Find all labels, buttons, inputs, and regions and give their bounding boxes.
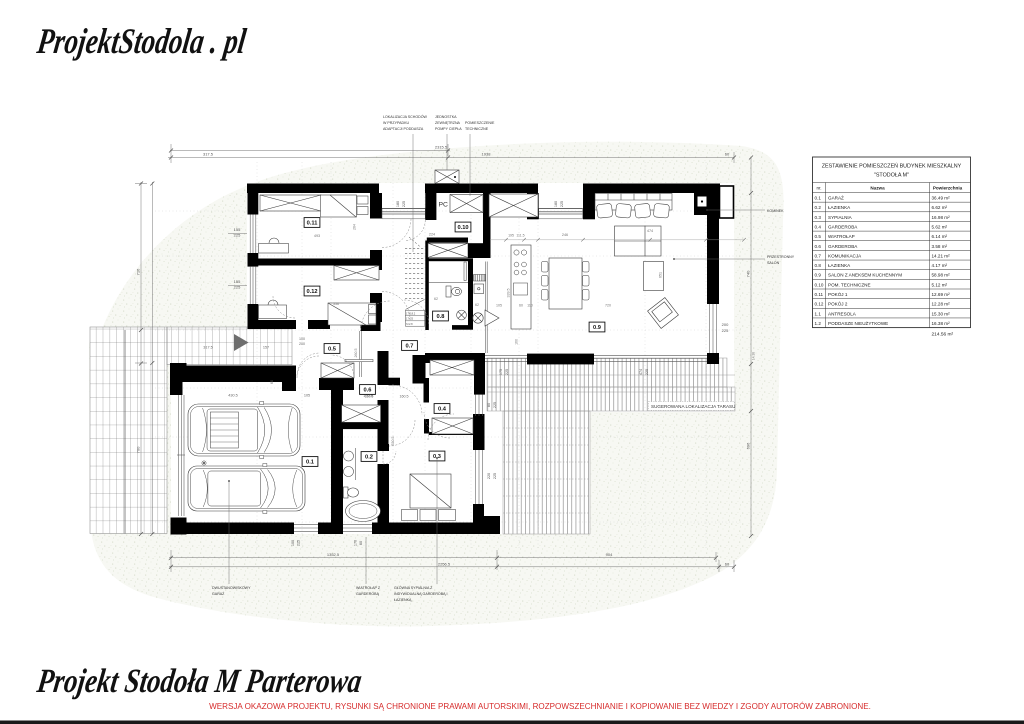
svg-text:5.62 m²: 5.62 m² xyxy=(932,224,948,229)
svg-text:60: 60 xyxy=(725,152,730,157)
svg-text:1.2: 1.2 xyxy=(815,321,822,326)
svg-text:nr.: nr. xyxy=(816,186,821,191)
svg-text:58.98 m²: 58.98 m² xyxy=(932,273,951,278)
svg-text:225: 225 xyxy=(722,328,729,333)
svg-text:16.98 m²: 16.98 m² xyxy=(932,215,951,220)
svg-text:100: 100 xyxy=(291,540,295,546)
svg-text:200: 200 xyxy=(299,342,305,346)
svg-text:225: 225 xyxy=(645,369,649,375)
svg-text:KOMINEK: KOMINEK xyxy=(767,209,784,213)
svg-text:264: 264 xyxy=(353,224,357,230)
svg-text:WIATROŁAP: WIATROŁAP xyxy=(828,234,855,239)
svg-text:SALON Z ANEKSEM KUCHENNYM: SALON Z ANEKSEM KUCHENNYM xyxy=(828,273,902,278)
svg-text:904: 904 xyxy=(606,552,613,557)
svg-text:200: 200 xyxy=(722,322,729,327)
svg-text:16.38 m²: 16.38 m² xyxy=(932,321,951,326)
svg-text:ŁAZIENKA: ŁAZIENKA xyxy=(828,263,851,268)
svg-text:317.5: 317.5 xyxy=(203,152,214,157)
svg-text:0.9: 0.9 xyxy=(815,273,822,278)
svg-text:POMPY CIEPŁA: POMPY CIEPŁA xyxy=(435,127,462,131)
svg-text:INDYWIDUALNĄ GARDEROBĄ I: INDYWIDUALNĄ GARDEROBĄ I xyxy=(394,592,448,596)
svg-text:716: 716 xyxy=(136,268,141,275)
svg-text:110.5: 110.5 xyxy=(365,395,374,399)
svg-text:336: 336 xyxy=(333,302,339,306)
svg-text:62: 62 xyxy=(434,297,438,301)
svg-text:GARAŻ: GARAŻ xyxy=(828,195,844,201)
svg-text:225: 225 xyxy=(234,285,241,290)
svg-text:60: 60 xyxy=(270,380,274,384)
svg-text:WIATROŁAP Z: WIATROŁAP Z xyxy=(356,586,381,590)
svg-text:POM. TECHNICZNE: POM. TECHNICZNE xyxy=(828,282,871,287)
svg-text:ZESTAWIENIE POMIESZCZEŃ BUDYNE: ZESTAWIENIE POMIESZCZEŃ BUDYNEK MIESZKAL… xyxy=(822,163,962,170)
svg-text:14.21 m²: 14.21 m² xyxy=(932,253,951,258)
svg-text:4.17 m²: 4.17 m² xyxy=(932,263,948,268)
svg-text:Nazwa: Nazwa xyxy=(870,186,885,191)
svg-text:60: 60 xyxy=(519,304,523,308)
svg-text:60: 60 xyxy=(359,541,363,545)
svg-text:6.62 m²: 6.62 m² xyxy=(932,205,948,210)
svg-text:225: 225 xyxy=(493,473,497,479)
svg-text:5.12 m²: 5.12 m² xyxy=(932,282,948,287)
svg-text:0.6: 0.6 xyxy=(364,388,372,394)
svg-text:214.56 m²: 214.56 m² xyxy=(932,332,954,338)
svg-text:GARAŻ: GARAŻ xyxy=(212,591,225,596)
svg-text:2315.5: 2315.5 xyxy=(435,145,448,150)
svg-text:0.11: 0.11 xyxy=(815,292,824,297)
svg-text:ANTRESOLA: ANTRESOLA xyxy=(828,311,857,316)
svg-text:225: 225 xyxy=(234,233,241,238)
svg-text:430.5: 430.5 xyxy=(228,394,238,398)
svg-text:700: 700 xyxy=(136,446,141,453)
svg-text:GARDEROBA: GARDEROBA xyxy=(828,224,858,229)
svg-text:12.28 m²: 12.28 m² xyxy=(932,302,951,307)
svg-text:POMIESZCZENIE: POMIESZCZENIE xyxy=(465,121,495,125)
svg-text:160.5: 160.5 xyxy=(400,395,409,399)
svg-text:0.8: 0.8 xyxy=(437,314,445,320)
svg-text:0.10: 0.10 xyxy=(457,225,468,231)
svg-text:60: 60 xyxy=(725,562,730,567)
svg-text:175: 175 xyxy=(499,369,503,375)
svg-text:ADAPTACJI PODDASZA: ADAPTACJI PODDASZA xyxy=(383,127,424,131)
svg-text:0.2: 0.2 xyxy=(815,205,822,210)
svg-text:0.5: 0.5 xyxy=(815,234,822,239)
svg-text:GARDEROBĄ: GARDEROBĄ xyxy=(356,592,380,596)
svg-text:160: 160 xyxy=(515,339,519,345)
svg-text:220: 220 xyxy=(487,473,491,479)
svg-text:317.5: 317.5 xyxy=(203,346,213,350)
svg-text:ŁAZIENKĄ: ŁAZIENKĄ xyxy=(394,598,412,602)
svg-text:PC: PC xyxy=(439,202,449,209)
svg-text:339.5: 339.5 xyxy=(507,289,511,298)
svg-text:225: 225 xyxy=(297,540,301,546)
svg-text:17x25: 17x25 xyxy=(406,317,414,321)
svg-text:80: 80 xyxy=(487,403,491,407)
svg-text:0.12: 0.12 xyxy=(815,302,824,307)
svg-text:2256.5: 2256.5 xyxy=(438,562,451,567)
svg-text:GŁÓWNA SYPIALNIA Z: GŁÓWNA SYPIALNIA Z xyxy=(394,585,433,590)
svg-text:246: 246 xyxy=(562,233,568,237)
svg-text:ZEWNĘTRZNA: ZEWNĘTRZNA xyxy=(435,121,461,125)
svg-text:"STODOŁA M": "STODOŁA M" xyxy=(874,173,909,179)
svg-text:0.7: 0.7 xyxy=(815,253,822,258)
svg-text:LOKALIZACJA SCHODÓW: LOKALIZACJA SCHODÓW xyxy=(383,114,428,119)
svg-text:1.1: 1.1 xyxy=(815,311,822,316)
svg-text:180: 180 xyxy=(396,201,400,207)
svg-text:224: 224 xyxy=(429,233,435,237)
svg-text:740: 740 xyxy=(746,270,751,277)
svg-text:POKÓJ 1: POKÓJ 1 xyxy=(828,291,848,297)
svg-text:0.1: 0.1 xyxy=(815,196,822,201)
svg-text:225: 225 xyxy=(402,201,406,207)
svg-text:15.30 m²: 15.30 m² xyxy=(932,311,951,316)
svg-text:h=2.8: h=2.8 xyxy=(406,322,413,326)
svg-text:493: 493 xyxy=(314,234,320,238)
svg-text:225: 225 xyxy=(560,201,564,207)
svg-text:SYPIALNIA: SYPIALNIA xyxy=(828,215,853,220)
svg-text:0.10: 0.10 xyxy=(815,282,824,287)
svg-text:1352.5: 1352.5 xyxy=(327,552,340,557)
svg-text:KOMUNIKACJA: KOMUNIKACJA xyxy=(828,253,862,258)
svg-text:62: 62 xyxy=(475,303,479,307)
svg-text:TECHNICZNE: TECHNICZNE xyxy=(465,127,489,131)
svg-text:720: 720 xyxy=(605,304,611,308)
svg-text:110: 110 xyxy=(527,304,533,308)
svg-text:12.69 m²: 12.69 m² xyxy=(932,292,951,297)
svg-text:6.14 m²: 6.14 m² xyxy=(932,234,948,239)
svg-text:PODDASZE NIEUŻYTKOWE: PODDASZE NIEUŻYTKOWE xyxy=(828,320,888,326)
svg-text:3.58 m²: 3.58 m² xyxy=(932,244,948,249)
svg-text:530.5: 530.5 xyxy=(391,437,395,446)
svg-text:0.1: 0.1 xyxy=(306,460,314,466)
svg-text:ŁAZIENKA: ŁAZIENKA xyxy=(828,205,851,210)
svg-text:105: 105 xyxy=(304,394,310,398)
svg-text:195: 195 xyxy=(508,234,514,238)
svg-text:0.11: 0.11 xyxy=(307,221,318,227)
svg-text:1938: 1938 xyxy=(482,152,492,157)
svg-text:155: 155 xyxy=(234,227,241,232)
svg-text:PRZESTRONNY: PRZESTRONNY xyxy=(767,255,795,259)
svg-text:SUGEROWANA LOKALIZACJA TARASU: SUGEROWANA LOKALIZACJA TARASU xyxy=(651,404,735,409)
svg-text:474: 474 xyxy=(647,229,653,233)
svg-text:Projekt Stodoła M Parterowa: Projekt Stodoła M Parterowa xyxy=(34,663,364,700)
svg-text:170: 170 xyxy=(354,540,358,546)
svg-text:0.2: 0.2 xyxy=(365,455,373,461)
svg-text:0.4: 0.4 xyxy=(438,407,447,413)
svg-text:W PRZYPADKU: W PRZYPADKU xyxy=(383,121,409,125)
svg-text:WERSJA OKAZOWA PROJEKTU, RYSUN: WERSJA OKAZOWA PROJEKTU, RYSUNKI SĄ CHRO… xyxy=(209,702,871,711)
svg-text:0.3: 0.3 xyxy=(815,215,822,220)
svg-text:157: 157 xyxy=(263,346,269,350)
svg-text:0.8: 0.8 xyxy=(815,263,822,268)
svg-text:Powierzchnia: Powierzchnia xyxy=(933,186,963,191)
svg-text:JEDNOSTKA: JEDNOSTKA xyxy=(435,115,457,119)
svg-text:0.4: 0.4 xyxy=(815,224,822,229)
svg-text:155: 155 xyxy=(234,279,241,284)
svg-text:POKÓJ 2: POKÓJ 2 xyxy=(828,301,848,307)
svg-text:100: 100 xyxy=(299,337,305,341)
svg-text:17x18.2: 17x18.2 xyxy=(406,311,416,315)
svg-text:0.12: 0.12 xyxy=(306,289,317,295)
svg-text:225: 225 xyxy=(505,369,509,375)
svg-text:14.38: 14.38 xyxy=(752,352,756,360)
svg-text:36.49 m²: 36.49 m² xyxy=(932,196,951,201)
svg-text:0.7: 0.7 xyxy=(406,344,414,350)
svg-text:180: 180 xyxy=(554,201,558,207)
svg-text:0.6: 0.6 xyxy=(815,244,822,249)
svg-text:651: 651 xyxy=(659,272,663,278)
svg-text:105: 105 xyxy=(496,304,502,308)
svg-text:ProjektStodola . pl: ProjektStodola . pl xyxy=(34,21,248,61)
svg-text:474: 474 xyxy=(639,369,643,375)
svg-text:SALON: SALON xyxy=(767,261,780,265)
svg-text:GARDEROBA: GARDEROBA xyxy=(828,244,858,249)
svg-text:696: 696 xyxy=(746,442,751,449)
svg-text:260.5: 260.5 xyxy=(354,349,358,358)
svg-text:225: 225 xyxy=(493,402,497,408)
svg-text:111.5: 111.5 xyxy=(516,234,524,238)
svg-text:0.9: 0.9 xyxy=(593,325,601,331)
svg-text:DWUSTANOWISKOWY: DWUSTANOWISKOWY xyxy=(212,586,251,590)
svg-text:0.5: 0.5 xyxy=(328,347,336,353)
